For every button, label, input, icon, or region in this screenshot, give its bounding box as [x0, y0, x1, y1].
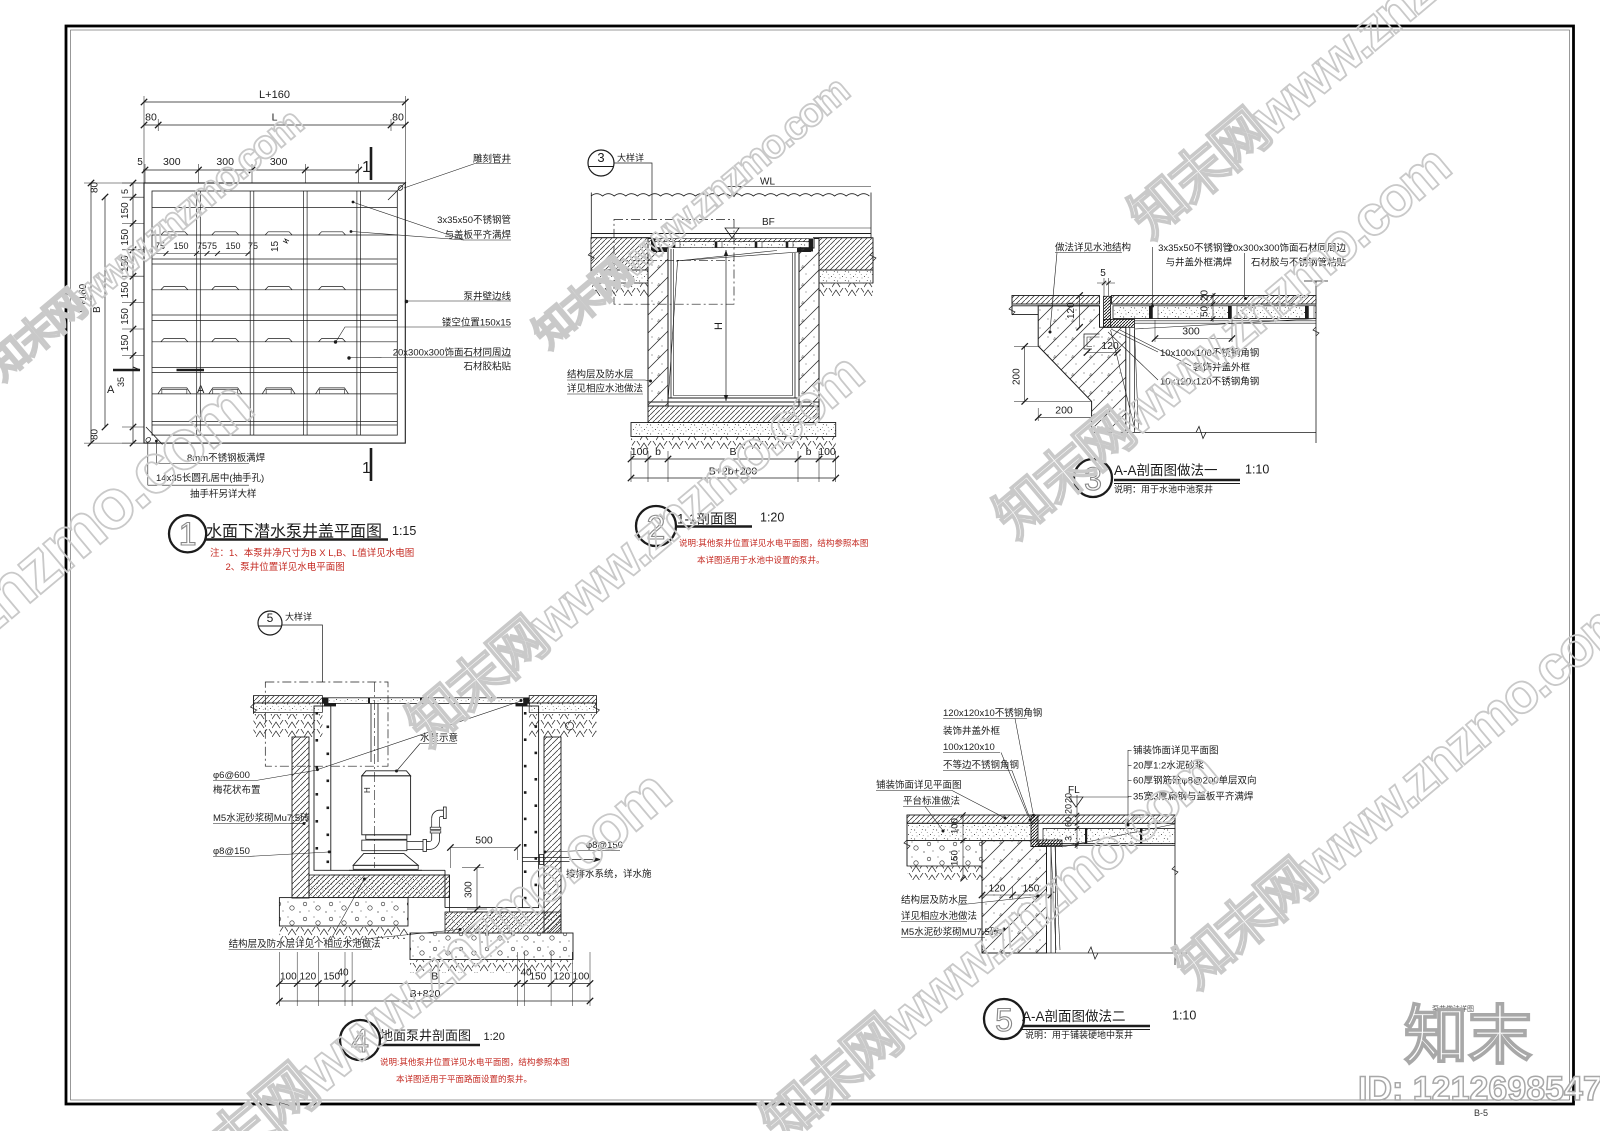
- svg-text:说明:其他泵井位置详见水电平面图，结构参照本图: 说明:其他泵井位置详见水电平面图，结构参照本图: [679, 538, 868, 548]
- svg-text:说明：用于水池中池泵井: 说明：用于水池中池泵井: [1114, 484, 1213, 495]
- svg-text:抽手杆另详大样: 抽手杆另详大样: [190, 488, 257, 500]
- svg-text:H: H: [363, 787, 372, 793]
- svg-text:1:10: 1:10: [1172, 1009, 1196, 1023]
- svg-text:平台标准做法: 平台标准做法: [903, 795, 960, 807]
- svg-text:150: 150: [950, 850, 961, 866]
- svg-text:5: 5: [120, 189, 130, 194]
- svg-text:75: 75: [197, 241, 207, 251]
- svg-text:150: 150: [120, 334, 131, 351]
- svg-text:本详图适用于平面路面设置的泵井。: 本详图适用于平面路面设置的泵井。: [396, 1074, 532, 1084]
- svg-text:H: H: [713, 322, 725, 330]
- svg-text:120: 120: [1066, 302, 1077, 319]
- svg-text:2、泵井位置详见水电平面图: 2、泵井位置详见水电平面图: [226, 561, 345, 573]
- svg-text:5: 5: [267, 611, 274, 625]
- svg-text:150: 150: [120, 308, 131, 325]
- svg-text:说明:其他泵井位置详见水电平面图，结构参照本图: 说明:其他泵井位置详见水电平面图，结构参照本图: [380, 1057, 569, 1067]
- svg-text:20: 20: [1200, 289, 1211, 301]
- svg-text:知末: 知末: [1404, 1000, 1532, 1072]
- svg-text:80: 80: [145, 112, 157, 124]
- svg-text:φ8@150: φ8@150: [213, 846, 250, 857]
- svg-text:3x35x50不锈钢管: 3x35x50不锈钢管: [1158, 242, 1232, 254]
- svg-text:说明：用于铺装硬地中泵井: 说明：用于铺装硬地中泵井: [1025, 1029, 1133, 1040]
- svg-text:200: 200: [1012, 368, 1023, 385]
- svg-text:150: 150: [529, 972, 546, 983]
- svg-text:5: 5: [1100, 268, 1106, 279]
- svg-text:注：1、本泵井净尺寸为B X L,B、L值详见水电图: 注：1、本泵井净尺寸为B X L,B、L值详见水电图: [210, 547, 414, 559]
- svg-text:BF: BF: [762, 217, 775, 228]
- svg-text:100: 100: [631, 446, 649, 458]
- svg-text:120x120x10不锈钢角钢: 120x120x10不锈钢角钢: [943, 707, 1042, 719]
- svg-text:1:20: 1:20: [484, 1031, 505, 1043]
- svg-text:大样详: 大样详: [617, 152, 644, 163]
- svg-text:35: 35: [116, 377, 126, 387]
- svg-text:A-A剖面图做法二: A-A剖面图做法二: [1022, 1009, 1126, 1024]
- svg-text:梅花状布置: 梅花状布置: [213, 784, 261, 796]
- svg-text:120: 120: [1101, 340, 1119, 352]
- svg-text:1: 1: [179, 516, 197, 552]
- svg-text:A-A剖面图做法一: A-A剖面图做法一: [1114, 463, 1218, 478]
- svg-text:做法详见水池结构: 做法详见水池结构: [1055, 242, 1131, 254]
- svg-text:A: A: [107, 384, 115, 396]
- svg-text:铺装饰面详见平面图: 铺装饰面详见平面图: [876, 779, 962, 791]
- svg-text:200: 200: [1055, 405, 1073, 417]
- svg-text:φ6@600: φ6@600: [213, 770, 250, 781]
- svg-text:100: 100: [950, 818, 961, 834]
- svg-text:100: 100: [818, 446, 836, 458]
- svg-text:3x35x50不锈钢管: 3x35x50不锈钢管: [437, 214, 511, 226]
- svg-text:100: 100: [280, 972, 297, 983]
- svg-text:大样详: 大样详: [285, 611, 312, 622]
- svg-text:80: 80: [90, 181, 101, 193]
- svg-text:120: 120: [553, 972, 570, 983]
- svg-text:3: 3: [597, 150, 604, 165]
- svg-text:300: 300: [163, 156, 181, 168]
- svg-text:80: 80: [392, 112, 404, 124]
- svg-text:5: 5: [137, 157, 143, 168]
- svg-text:80: 80: [90, 428, 101, 440]
- svg-text:1: 1: [362, 460, 371, 477]
- svg-text:b: b: [655, 446, 661, 458]
- svg-text:150: 150: [225, 241, 240, 251]
- svg-text:b: b: [806, 446, 812, 458]
- svg-text:结构层及防水层: 结构层及防水层: [567, 369, 634, 381]
- svg-text:M5水泥砂浆砌Mu7.5砖: M5水泥砂浆砌Mu7.5砖: [213, 812, 310, 824]
- svg-text:120: 120: [299, 972, 316, 983]
- svg-text:5: 5: [995, 1002, 1013, 1038]
- svg-text:1:10: 1:10: [1245, 463, 1269, 477]
- svg-text:结构层及防水层: 结构层及防水层: [901, 894, 968, 906]
- svg-text:1:20: 1:20: [760, 511, 784, 525]
- svg-text:500: 500: [475, 835, 493, 847]
- svg-text:本详图适用于水池中设置的泵井。: 本详图适用于水池中设置的泵井。: [697, 555, 825, 565]
- svg-text:详见相应水池做法: 详见相应水池做法: [901, 910, 977, 922]
- svg-text:ID: 1212698547: ID: 1212698547: [1358, 1070, 1600, 1108]
- svg-text:不等边不锈钢角钢: 不等边不锈钢角钢: [943, 759, 1019, 771]
- svg-text:150: 150: [120, 202, 131, 219]
- svg-text:20: 20: [1064, 793, 1074, 803]
- svg-text:与井盖外框满焊: 与井盖外框满焊: [1165, 257, 1232, 269]
- svg-text:详见相应水池做法: 详见相应水池做法: [567, 383, 643, 395]
- svg-text:75: 75: [248, 241, 258, 251]
- svg-text:100: 100: [573, 972, 590, 983]
- svg-text:15: 15: [270, 240, 281, 252]
- svg-text:60: 60: [1064, 817, 1074, 827]
- svg-text:100x120x10: 100x120x10: [943, 742, 995, 753]
- svg-text:40: 40: [337, 968, 349, 979]
- svg-text:20: 20: [1064, 804, 1074, 814]
- svg-text:水面下潜水泵井盖平面图: 水面下潜水泵井盖平面图: [206, 523, 382, 541]
- svg-text:B-5: B-5: [1474, 1108, 1488, 1118]
- svg-text:装饰井盖外框: 装饰井盖外框: [943, 725, 1001, 737]
- svg-text:石材胶粘贴: 石材胶粘贴: [463, 361, 511, 373]
- svg-text:L+160: L+160: [259, 89, 290, 101]
- svg-text:1: 1: [362, 159, 371, 176]
- svg-text:75: 75: [207, 241, 217, 251]
- svg-text:1:15: 1:15: [392, 524, 416, 538]
